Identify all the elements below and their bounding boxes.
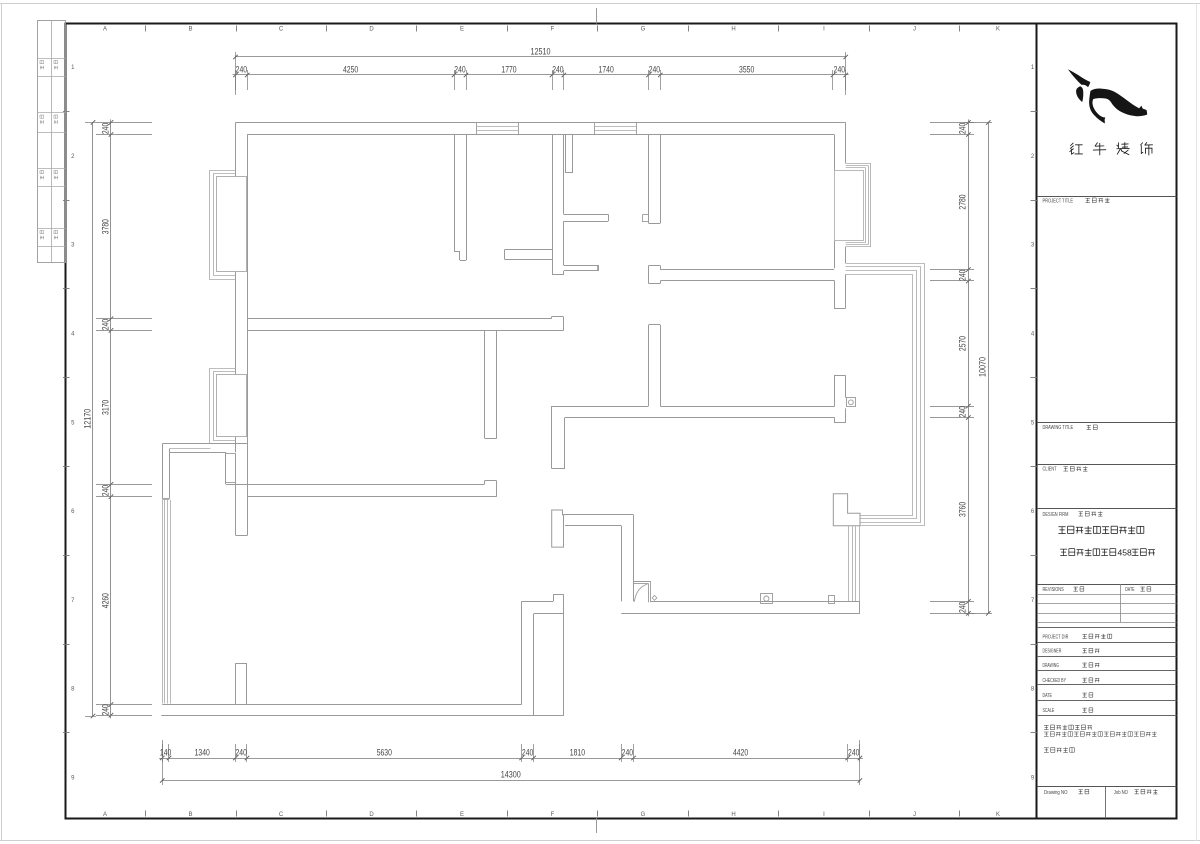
- svg-text:CLIENT: CLIENT: [1043, 467, 1058, 473]
- svg-text:14300: 14300: [501, 770, 521, 781]
- svg-text:140: 140: [160, 747, 171, 758]
- svg-text:4260: 4260: [100, 593, 111, 608]
- svg-text:SCALE: SCALE: [1043, 708, 1055, 714]
- svg-text:240: 240: [100, 123, 111, 134]
- svg-text:1770: 1770: [501, 64, 516, 75]
- svg-text:240: 240: [100, 485, 111, 496]
- svg-text:3780: 3780: [100, 219, 111, 234]
- svg-text:D: D: [369, 812, 374, 818]
- svg-text:5630: 5630: [377, 747, 392, 758]
- svg-text:A: A: [103, 812, 107, 818]
- svg-text:1340: 1340: [195, 747, 210, 758]
- svg-text:B: B: [188, 812, 192, 818]
- svg-text:10070: 10070: [978, 357, 989, 377]
- svg-text:DESIGN FIRM: DESIGN FIRM: [1043, 512, 1069, 518]
- svg-text:12510: 12510: [531, 46, 551, 57]
- svg-text:240: 240: [848, 747, 859, 758]
- svg-text:3550: 3550: [739, 64, 754, 75]
- svg-text:4250: 4250: [343, 64, 358, 75]
- svg-text:J: J: [913, 27, 916, 33]
- svg-text:3170: 3170: [100, 400, 111, 415]
- svg-text:B: B: [188, 27, 192, 33]
- svg-text:DATE: DATE: [1125, 587, 1135, 593]
- svg-text:K: K: [996, 812, 1000, 818]
- svg-text:DRAWING: DRAWING: [1043, 663, 1059, 669]
- svg-text:12170: 12170: [82, 409, 93, 429]
- svg-text:F: F: [551, 812, 555, 818]
- svg-text:DATE: DATE: [1043, 693, 1053, 699]
- svg-text:G: G: [641, 812, 646, 818]
- svg-text:240: 240: [958, 270, 969, 281]
- svg-text:240: 240: [622, 747, 633, 758]
- svg-text:PROJECT TITLE: PROJECT TITLE: [1043, 199, 1074, 205]
- svg-text:240: 240: [454, 64, 465, 75]
- svg-text:240: 240: [236, 64, 247, 75]
- svg-text:F: F: [551, 27, 555, 33]
- svg-text:G: G: [641, 27, 646, 33]
- svg-text:Drawing NO: Drawing NO: [1044, 790, 1068, 796]
- svg-text:J: J: [913, 812, 916, 818]
- svg-text:C: C: [279, 27, 284, 33]
- svg-text:458: 458: [1118, 548, 1132, 558]
- svg-text:PROJECT DIR: PROJECT DIR: [1043, 634, 1069, 640]
- svg-text:Job NO: Job NO: [1114, 790, 1128, 796]
- svg-text:A: A: [103, 27, 107, 33]
- svg-text:3760: 3760: [958, 502, 969, 517]
- svg-text:CHECKED BY: CHECKED BY: [1043, 678, 1067, 684]
- svg-text:240: 240: [100, 704, 111, 715]
- svg-text:C: C: [279, 812, 284, 818]
- svg-text:240: 240: [958, 406, 969, 417]
- svg-text:4420: 4420: [733, 747, 748, 758]
- svg-text:1810: 1810: [570, 747, 585, 758]
- svg-text:E: E: [460, 812, 464, 818]
- svg-text:240: 240: [522, 747, 533, 758]
- svg-text:2570: 2570: [958, 336, 969, 351]
- svg-text:DESIGNER: DESIGNER: [1043, 649, 1062, 655]
- svg-text:REVISIONS: REVISIONS: [1043, 587, 1065, 593]
- svg-text:240: 240: [834, 64, 845, 75]
- svg-text:240: 240: [958, 123, 969, 134]
- svg-text:K: K: [996, 27, 1000, 33]
- svg-text:E: E: [460, 27, 464, 33]
- svg-text:240: 240: [649, 64, 660, 75]
- svg-text:240: 240: [100, 319, 111, 330]
- svg-text:H: H: [731, 27, 735, 33]
- svg-text:240: 240: [236, 747, 247, 758]
- svg-text:DRAWING TITLE: DRAWING TITLE: [1043, 425, 1074, 431]
- svg-text:240: 240: [958, 602, 969, 613]
- svg-text:1740: 1740: [599, 64, 614, 75]
- svg-text:H: H: [731, 812, 735, 818]
- svg-text:240: 240: [552, 64, 563, 75]
- svg-text:D: D: [369, 27, 374, 33]
- svg-text:2780: 2780: [958, 194, 969, 209]
